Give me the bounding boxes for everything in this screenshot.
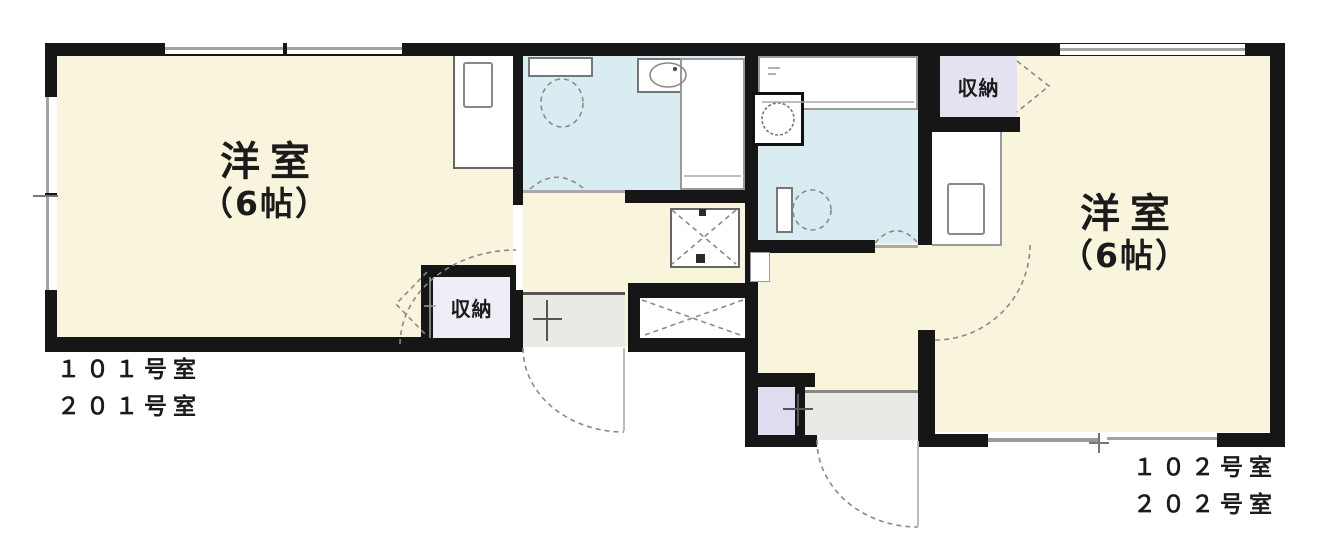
bathtub-101 (680, 58, 745, 190)
closet-102-left-wall (927, 50, 940, 123)
wall-wet-102-right-lower (918, 330, 935, 447)
shoe-box-102 (758, 387, 795, 435)
entry-102-floor (805, 390, 918, 440)
unit-101-line1: １０１号室 (57, 352, 202, 389)
entry-101-door-arc (523, 348, 624, 432)
wall-entry-102-topbar (755, 373, 815, 387)
wall-entry-102-post (795, 387, 805, 437)
window-bottom-102 (1107, 433, 1217, 446)
wall-bottom-102-right (1217, 433, 1285, 447)
bath-102-threshold (875, 245, 918, 248)
window-top-102 (1060, 44, 1245, 55)
stairbox-lower-interior (640, 298, 745, 338)
stairbox-upper (670, 208, 740, 268)
unit-101-numbers: １０１号室 ２０１号室 (57, 352, 202, 426)
wall-bottom-102-left (918, 434, 988, 447)
floorplan-canvas: 洋室 （6帖） 洋室 （6帖） 収納 収納 １０１号室 ２０１号室 １０２号室 … (0, 0, 1344, 559)
closet-102-bottom-wall (927, 117, 1020, 132)
closet-101-label: 収納 (433, 277, 510, 338)
unit-201-line2: ２０１号室 (57, 389, 202, 426)
unit-102-line1: １０２号室 (1133, 450, 1278, 487)
room-101-name: 洋室 (210, 140, 320, 184)
room-101-label: 洋室 （6帖） (120, 140, 410, 246)
wall-right (1270, 43, 1285, 447)
closet-102-label: 収納 (940, 56, 1017, 117)
window-bottom-102-tick (1089, 433, 1109, 453)
toilet-tank-101 (528, 57, 593, 77)
room-102-sill (985, 438, 1100, 442)
unit-202-line2: ２０２号室 (1133, 487, 1278, 524)
room-102-size: （6帖） (1060, 236, 1190, 276)
wall-divider-101 (513, 43, 523, 205)
wall-bath-101-bottom (625, 190, 758, 203)
wall-entry-102-bottom (745, 435, 817, 447)
entry-101-floor (523, 292, 625, 347)
pipe-space-niche (750, 252, 770, 282)
kitchenette-101 (463, 62, 493, 108)
entry-102-door-arc (817, 440, 918, 527)
window-top-101-a (165, 43, 283, 54)
window-left-lower (40, 197, 57, 290)
bath-101-threshold (523, 190, 625, 193)
washer-pan-102 (752, 92, 804, 146)
toilet-tank-102 (776, 187, 793, 233)
unit-102-numbers: １０２号室 ２０２号室 (1133, 450, 1278, 524)
room-102-label: 洋室 （6帖） (980, 192, 1270, 298)
window-left-upper (40, 97, 57, 193)
room-102-name: 洋室 (1070, 192, 1180, 236)
room-101-size: （6帖） (200, 184, 330, 224)
window-top-101-b (287, 43, 402, 54)
wall-entry-101-nub (513, 290, 523, 352)
